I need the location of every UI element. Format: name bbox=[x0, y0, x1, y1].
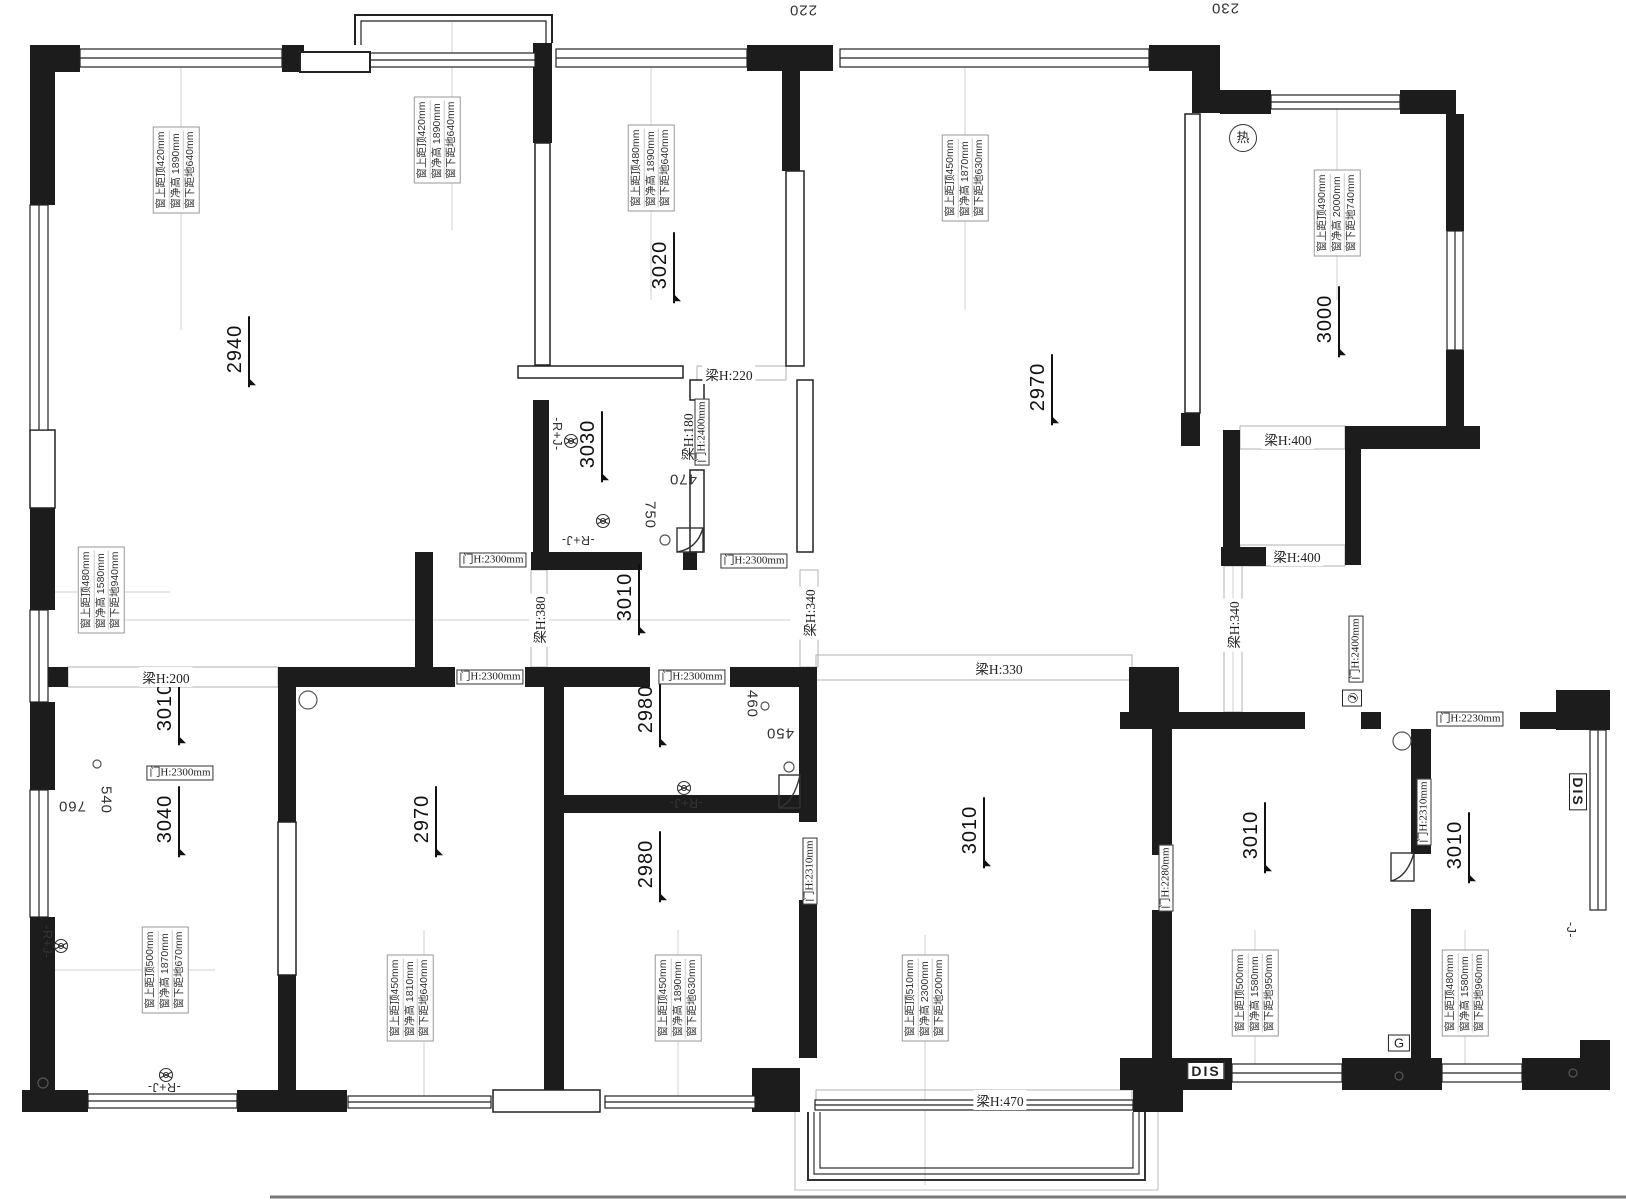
room-height-value: 3020 bbox=[649, 233, 675, 304]
door-height-label: 门H:2300mm bbox=[720, 554, 787, 569]
window-annotation: 窗上距顶480mm窗净高 1890mm窗下距地640mm bbox=[628, 124, 675, 211]
dimension-label: 230 bbox=[1211, 0, 1239, 17]
shower-icon bbox=[677, 528, 1414, 881]
room-height-value: 2940 bbox=[224, 317, 250, 388]
window-annotation-line: 窗下距地960mm bbox=[1473, 953, 1487, 1032]
room-height-label: 3040 bbox=[154, 787, 180, 858]
window-annotation-line: 窗净高 1890mm bbox=[169, 130, 184, 209]
window-annotation-line: 窗净高 1580mm bbox=[1248, 953, 1263, 1032]
room-height-label: 3000 bbox=[1314, 287, 1340, 358]
window-annotation: 窗上距顶510mm窗净高 2300mm窗下距地200mm bbox=[902, 954, 949, 1041]
door-height-label: 门H:2400mm bbox=[695, 398, 710, 465]
room-height-label: 2940 bbox=[224, 317, 250, 388]
pipe-riser-label: -R+J- bbox=[147, 1080, 180, 1094]
room-height-value: 3030 bbox=[577, 412, 603, 483]
window-annotation: 窗上距顶490mm窗净高 2000mm窗下距地740mm bbox=[1314, 169, 1361, 256]
window-annotation: 窗上距顶450mm窗净高 1890mm窗下距地630mm bbox=[655, 954, 702, 1041]
door-height-label: 门H:2300mm bbox=[658, 670, 725, 685]
dimension-label: 460 bbox=[744, 690, 761, 718]
door-height-label: 门H:2310mm bbox=[803, 837, 818, 904]
window-annotation-line: 窗下距地940mm bbox=[109, 550, 123, 629]
room-height-label: 2970 bbox=[1027, 355, 1053, 426]
window-annotation-line: 窗净高 2000mm bbox=[1330, 173, 1345, 252]
marker-box: ✆ bbox=[1342, 690, 1362, 707]
beam-height-label: 梁H:380 bbox=[529, 593, 549, 646]
window-annotation-line: 窗上距顶450mm bbox=[389, 958, 404, 1037]
window-annotation-line: 窗下距地630mm bbox=[973, 138, 987, 217]
window-annotation-line: 窗净高 1580mm bbox=[1458, 953, 1473, 1032]
window-annotation-line: 窗上距顶480mm bbox=[80, 550, 95, 629]
window-annotation-line: 窗净高 2300mm bbox=[918, 958, 933, 1037]
walls-solid bbox=[22, 43, 1610, 1112]
window-annotation-line: 窗净高 1890mm bbox=[671, 958, 686, 1037]
room-height-label: 3010 bbox=[959, 798, 985, 869]
room-height-label: 3020 bbox=[649, 233, 675, 304]
room-height-value: 3010 bbox=[614, 565, 640, 636]
window-annotation-line: 窗净高 1580mm bbox=[94, 550, 109, 629]
door-height-label: 门H:2230mm bbox=[1436, 712, 1503, 727]
beam-height-label: 梁H:470 bbox=[973, 1090, 1026, 1110]
pipe-riser-label: -R+J- bbox=[550, 417, 564, 450]
window-annotation: 窗上距顶420mm窗净高 1890mm窗下距地640mm bbox=[414, 96, 461, 183]
pipe-riser-label: -J- bbox=[1564, 922, 1578, 938]
room-height-value: 3010 bbox=[1444, 813, 1470, 884]
room-height-value: 3000 bbox=[1314, 287, 1340, 358]
room-height-label: 3030 bbox=[577, 412, 603, 483]
window-annotation-line: 窗下距地640mm bbox=[445, 100, 459, 179]
room-height-value: 2980 bbox=[635, 832, 661, 903]
window-annotation-line: 窗上距顶480mm bbox=[630, 128, 645, 207]
dimension-label: 750 bbox=[642, 501, 659, 529]
window-annotation: 窗上距顶480mm窗净高 1580mm窗下距地960mm bbox=[1442, 949, 1489, 1036]
window-annotation-line: 窗上距顶450mm bbox=[657, 958, 672, 1037]
door-height-label: 门H:2310mm bbox=[1417, 778, 1432, 845]
room-height-value: 2970 bbox=[411, 787, 437, 858]
window-annotation-line: 窗下距地640mm bbox=[418, 958, 432, 1037]
beam-height-label: 梁H:200 bbox=[139, 667, 192, 687]
balcony-railing bbox=[795, 1112, 1158, 1190]
room-height-label: 3010 bbox=[1240, 803, 1266, 874]
beam-height-label: 梁H:330 bbox=[972, 658, 1025, 678]
room-height-label: 2980 bbox=[635, 832, 661, 903]
marker-box: DIS bbox=[1187, 1062, 1224, 1080]
window-annotation-line: 窗下距地200mm bbox=[933, 958, 947, 1037]
window-annotation: 窗上距顶420mm窗净高 1890mm窗下距地640mm bbox=[153, 126, 200, 213]
room-height-value: 3010 bbox=[1240, 803, 1266, 874]
window-annotation: 窗上距顶450mm窗净高 1870mm窗下距地630mm bbox=[942, 134, 989, 221]
room-height-label: 3010 bbox=[614, 565, 640, 636]
room-height-value: 2980 bbox=[635, 677, 661, 748]
window-annotation-line: 窗上距顶420mm bbox=[416, 100, 431, 179]
dimension-label: 470 bbox=[669, 471, 697, 488]
window-annotation-line: 窗下距地640mm bbox=[659, 128, 673, 207]
dimension-label: 450 bbox=[766, 725, 794, 742]
window-annotation-line: 窗下距地640mm bbox=[184, 130, 198, 209]
door-height-label: 门H:2300mm bbox=[459, 553, 526, 568]
dimension-label: 540 bbox=[98, 786, 115, 814]
window-annotation-line: 窗下距地740mm bbox=[1345, 173, 1359, 252]
window-annotation-line: 窗下距地950mm bbox=[1263, 953, 1277, 1032]
window-annotation-line: 窗上距顶500mm bbox=[144, 930, 159, 1009]
window-annotation: 窗上距顶480mm窗净高 1580mm窗下距地940mm bbox=[78, 546, 125, 633]
window-annotation-line: 窗净高 1890mm bbox=[644, 128, 659, 207]
marker-box: 热 bbox=[1229, 124, 1257, 152]
dimension-label: 760 bbox=[58, 798, 86, 815]
door-height-label: 门H:2400mm bbox=[1349, 615, 1364, 682]
beam-height-label: 梁H:340 bbox=[1223, 598, 1243, 651]
beam-height-label: 梁H:220 bbox=[702, 364, 755, 384]
pipe-riser-label: -R+J- bbox=[669, 796, 702, 810]
room-height-value: 3040 bbox=[154, 787, 180, 858]
marker-box: DIS bbox=[1569, 773, 1587, 810]
room-height-label: 2970 bbox=[411, 787, 437, 858]
window-annotation-line: 窗上距顶420mm bbox=[155, 130, 170, 209]
window-annotation-line: 窗净高 1870mm bbox=[958, 138, 973, 217]
window-annotation: 窗上距顶500mm窗净高 1580mm窗下距地950mm bbox=[1232, 949, 1279, 1036]
window-annotation-line: 窗上距顶510mm bbox=[904, 958, 919, 1037]
room-height-value: 2970 bbox=[1027, 355, 1053, 426]
beam-height-label: 梁H:400 bbox=[1270, 546, 1323, 566]
dimension-label: 220 bbox=[789, 2, 817, 19]
window-annotation-line: 窗上距顶480mm bbox=[1444, 953, 1459, 1032]
pipe-riser-label: -R+J- bbox=[40, 925, 54, 958]
room-height-label: 3010 bbox=[1444, 813, 1470, 884]
window-annotation-line: 窗净高 1890mm bbox=[430, 100, 445, 179]
marker-box: G bbox=[1388, 1035, 1410, 1052]
room-height-label: 2980 bbox=[635, 677, 661, 748]
pipe-riser-label: -R+J- bbox=[561, 533, 594, 547]
window-annotation-line: 窗下距地670mm bbox=[173, 930, 187, 1009]
door-height-label: 门H:2300mm bbox=[146, 766, 213, 781]
window-annotation-line: 窗上距顶450mm bbox=[944, 138, 959, 217]
floor-plan: 2940302030302970300030103010304029702980… bbox=[0, 0, 1626, 1200]
window-annotation-line: 窗上距顶500mm bbox=[1234, 953, 1249, 1032]
window-annotation-line: 窗上距顶490mm bbox=[1316, 173, 1331, 252]
window-annotation: 窗上距顶450mm窗净高 1810mm窗下距地640mm bbox=[387, 954, 434, 1041]
door-height-label: 门H:2280mm bbox=[1159, 844, 1174, 911]
beam-height-label: 梁H:400 bbox=[1261, 429, 1314, 449]
room-height-value: 3010 bbox=[959, 798, 985, 869]
door-height-label: 门H:2300mm bbox=[456, 670, 523, 685]
window-annotation-line: 窗净高 1870mm bbox=[158, 930, 173, 1009]
window-annotation-line: 窗净高 1810mm bbox=[403, 958, 418, 1037]
beam-height-label: 梁H:340 bbox=[799, 586, 819, 639]
window-annotation: 窗上距顶500mm窗净高 1870mm窗下距地670mm bbox=[142, 926, 189, 1013]
window-annotation-line: 窗下距地630mm bbox=[686, 958, 700, 1037]
